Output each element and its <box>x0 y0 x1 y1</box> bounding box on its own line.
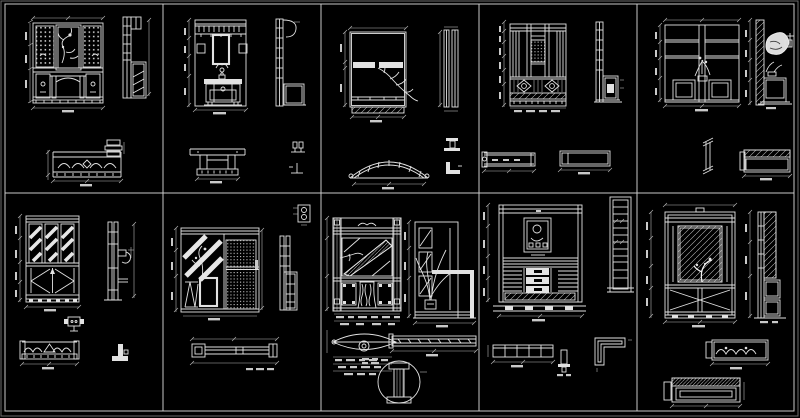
p9-front-elevation <box>483 203 586 321</box>
p7-knob-detail <box>293 205 310 225</box>
p5-baluster-detail <box>703 138 713 174</box>
panel-2-coat-hook-console <box>184 18 306 183</box>
p8-plan-strip <box>389 334 478 356</box>
p6-side-section <box>104 222 136 300</box>
panel-7-mirror-peg-partition <box>171 205 310 370</box>
p9-plan-view <box>488 345 555 367</box>
p5-wall-section <box>745 18 794 109</box>
panel-1-lattice-altar-cabinet <box>25 16 151 186</box>
p6-front-elevation <box>15 214 81 311</box>
p6-corner-detail <box>112 344 128 361</box>
p10-scroll-plan <box>706 340 770 369</box>
panel-5-plant-display-shelf <box>655 18 794 180</box>
p2-fitting-details <box>289 142 305 173</box>
p8-left-elevation <box>325 216 401 325</box>
p2-front-elevation <box>184 18 248 114</box>
p4-side-section <box>594 22 624 102</box>
p1-side-section <box>123 17 151 98</box>
panel-6-striped-door-cabinet <box>15 214 136 369</box>
p3-curved-plan-view <box>349 160 429 189</box>
p2-plan-view <box>190 149 245 183</box>
panel-10-mirror-hall-cabinet <box>646 203 786 408</box>
p7-side-section <box>280 236 297 310</box>
p2-side-section <box>276 19 306 106</box>
p1-front-elevation <box>25 16 105 112</box>
p9-corner-plan-detail <box>595 338 632 372</box>
p10-front-elevation <box>646 203 737 327</box>
p8-leaf-plan <box>327 330 396 375</box>
drawing-canvas <box>0 0 800 418</box>
p4-front-elevation <box>499 20 566 112</box>
p3-strip-details <box>444 138 462 174</box>
p4-plan-views <box>482 151 612 174</box>
p8-right-elevation <box>404 220 476 327</box>
p6-plan-view <box>20 341 79 369</box>
p1-plan-view <box>46 150 123 186</box>
panel-4-carved-screen-cabinet <box>482 20 624 174</box>
p9-side-section <box>607 197 634 292</box>
p7-front-elevation <box>171 226 264 320</box>
p9-pedestal-detail <box>557 350 571 376</box>
p8-section-detail-circle <box>362 358 427 403</box>
p5-plan-view <box>740 150 792 180</box>
p5-front-elevation <box>655 18 741 111</box>
p3-side-strips <box>438 27 458 111</box>
p10-hatched-plan <box>664 378 744 408</box>
panel-8-hall-cabinet-pair <box>325 216 478 403</box>
p6-outlet-detail <box>64 317 84 331</box>
p3-front-elevation <box>340 26 418 122</box>
p7-plan-view <box>190 337 279 370</box>
panel-9-drawer-chest-art-niche <box>483 197 634 376</box>
p10-side-section <box>745 210 786 323</box>
cad-sheet <box>0 0 800 418</box>
panel-3-branch-decor-panel <box>340 26 462 189</box>
